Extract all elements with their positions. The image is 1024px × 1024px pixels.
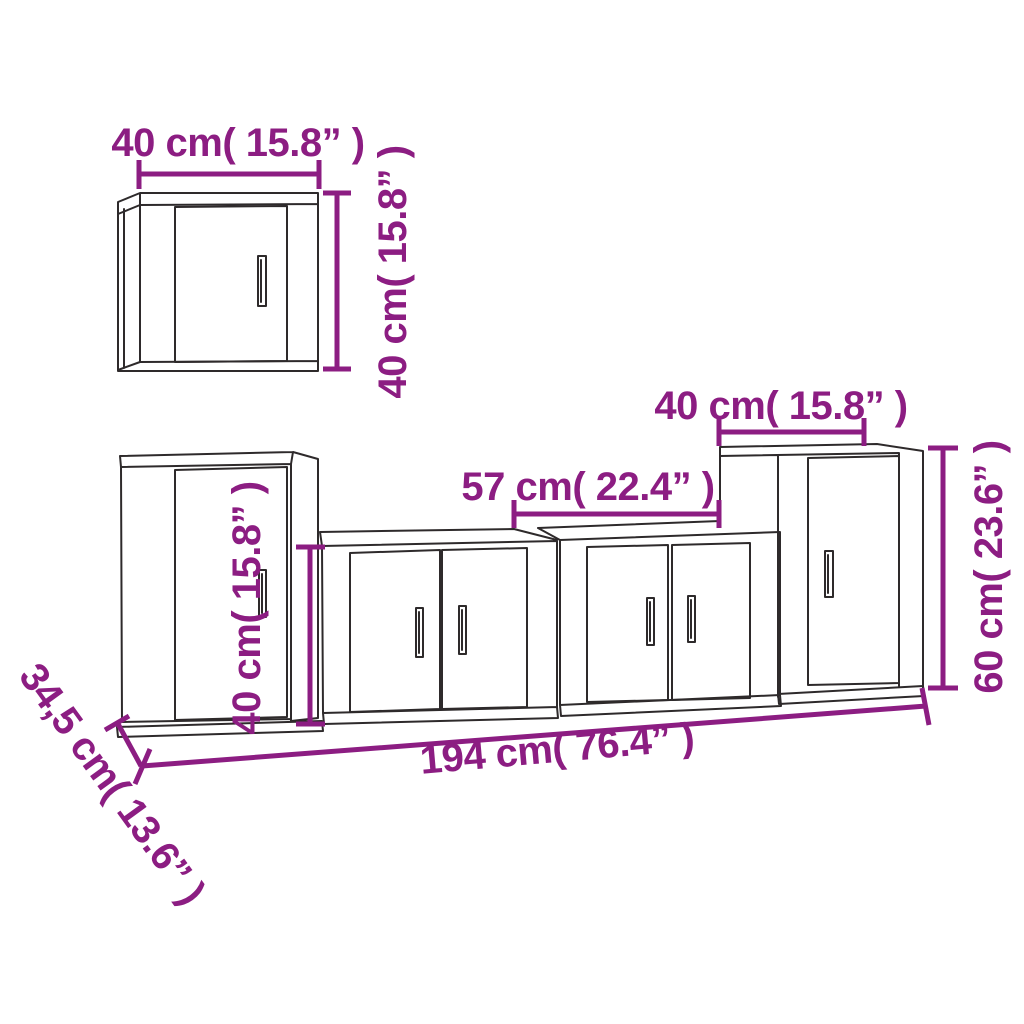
- total-width-label: 194 cm( 76.4” ): [418, 715, 696, 783]
- dim-wall-cabinet-height: 40 cm( 15.8” ): [323, 145, 415, 398]
- tv-bench-left-drawing: [320, 529, 558, 724]
- bench-height-line: [296, 547, 325, 724]
- tv-bench-left-door-2: [442, 548, 527, 709]
- bench-height-label: 40 cm( 15.8” ): [225, 481, 269, 734]
- tv-bench-right-door-2: [672, 543, 750, 700]
- tv-bench-right-door-1: [587, 545, 668, 702]
- wall-cabinet-door-handle: [258, 256, 266, 306]
- bench-width-label: 57 cm( 22.4” ): [461, 465, 714, 509]
- tall-cabinet-drawing: [117, 452, 323, 737]
- wall-cabinet-width-label: 40 cm( 15.8” ): [111, 121, 364, 165]
- wall-cabinet-height-label: 40 cm( 15.8” ): [371, 145, 415, 398]
- wall-cabinet-door: [175, 206, 287, 362]
- side-cabinet-height-line: [928, 448, 958, 688]
- tv-bench-right-handle-2: [688, 596, 695, 642]
- tv-bench-right-handle-1: [647, 598, 654, 645]
- tv-bench-right-drawing: [538, 521, 781, 716]
- dim-bench-height: 40 cm( 15.8” ): [225, 481, 325, 734]
- wall-cabinet-height-line: [323, 193, 351, 369]
- wall-cabinet-drawing: [118, 193, 318, 371]
- side-cabinet-door: [808, 456, 899, 685]
- depth-label: 34,5 cm( 13.6” ): [10, 656, 213, 913]
- dim-bench-width: 57 cm( 22.4” ): [461, 465, 719, 528]
- tall-cabinet-outline: [120, 452, 318, 722]
- dim-wall-cabinet-width: 40 cm( 15.8” ): [111, 121, 364, 189]
- tall-cabinet-base: [117, 721, 323, 737]
- tv-bench-right-outline: [538, 521, 781, 716]
- diagram-svg: 40 cm( 15.8” ) 40 cm( 15.8” ) 40 cm( 15.…: [0, 0, 1024, 1024]
- tv-bench-left-door-1: [350, 550, 440, 712]
- tv-bench-left-handle-1: [416, 608, 423, 657]
- dim-side-cabinet-height: 60 cm( 23.6” ): [928, 440, 1011, 693]
- dimension-diagram: 40 cm( 15.8” ) 40 cm( 15.8” ) 40 cm( 15.…: [0, 0, 1024, 1024]
- side-cabinet-width-label: 40 cm( 15.8” ): [654, 384, 907, 428]
- side-cabinet-height-label: 60 cm( 23.6” ): [967, 440, 1011, 693]
- dim-side-cabinet-width: 40 cm( 15.8” ): [654, 384, 907, 446]
- tv-bench-left-handle-2: [459, 606, 466, 654]
- dim-depth: 34,5 cm( 13.6” ): [10, 656, 213, 913]
- side-cabinet-door-handle: [825, 551, 833, 597]
